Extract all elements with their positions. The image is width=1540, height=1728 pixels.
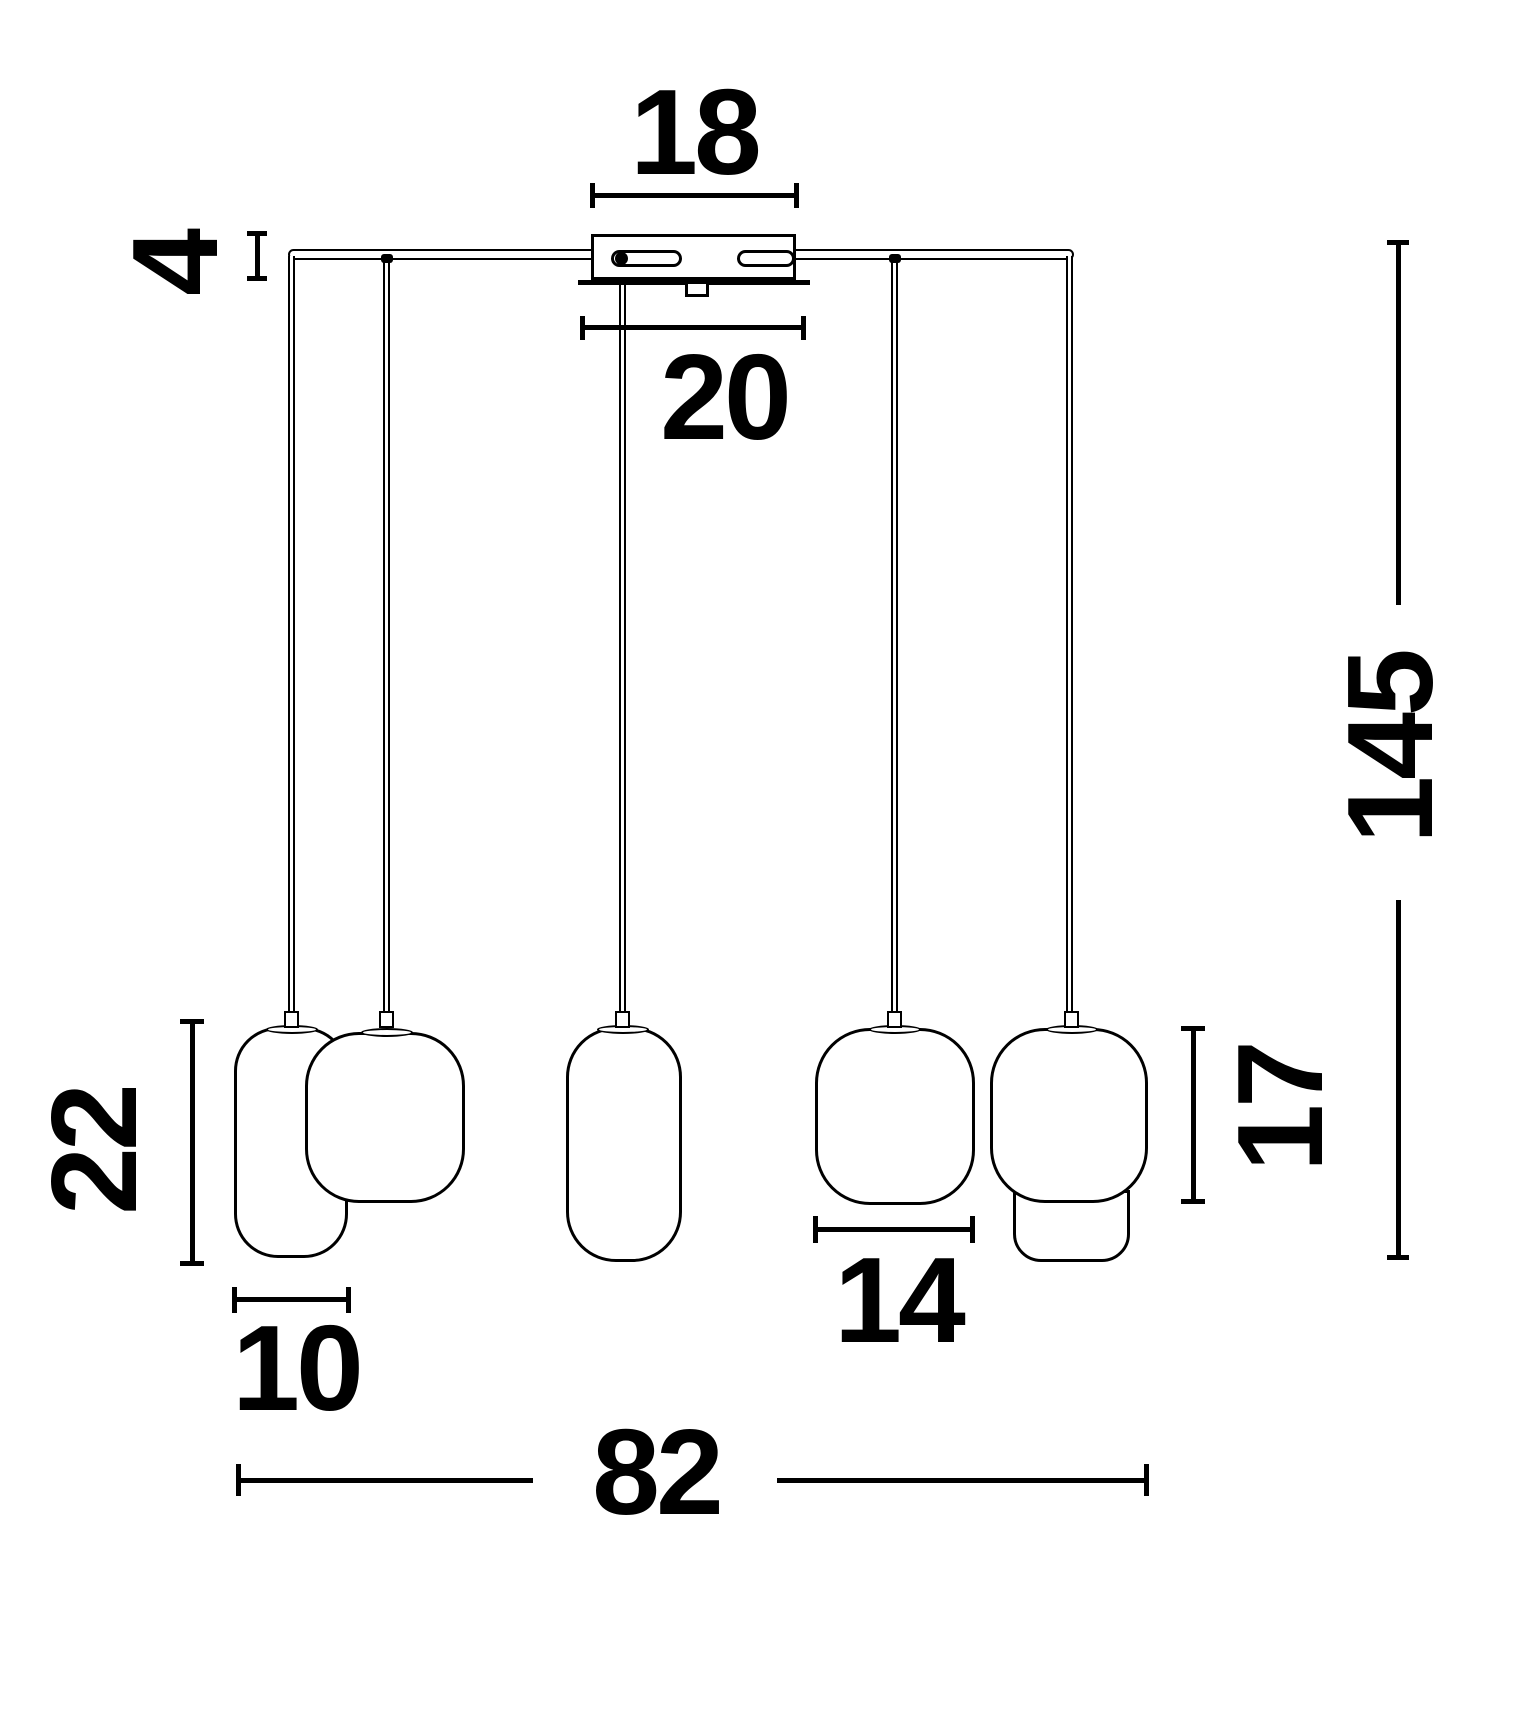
- socket-5: [1064, 1011, 1079, 1028]
- dim-tick: [1387, 1255, 1409, 1260]
- dim-tick: [1181, 1199, 1205, 1204]
- dim-tick: [1181, 1026, 1205, 1031]
- dim-line-22: [190, 1021, 195, 1266]
- dim-tick: [180, 1019, 204, 1024]
- dim-label-canopy-plate-width: 20: [660, 336, 788, 458]
- shade-5-rounded: [990, 1028, 1148, 1203]
- dim-tick: [580, 316, 585, 340]
- dim-label-right-shade-width: 14: [834, 1239, 962, 1361]
- cord-2-joint: [381, 254, 393, 263]
- dim-tick: [247, 276, 267, 281]
- socket-4: [887, 1011, 902, 1028]
- dim-label-canopy-width: 18: [630, 71, 758, 193]
- dim-line-145-upper: [1396, 242, 1401, 605]
- dim-label-suspension-height: 145: [1329, 652, 1451, 844]
- dim-line-82-right: [777, 1478, 1148, 1483]
- shade-2-rounded: [305, 1032, 465, 1203]
- dim-label-left-shade-height: 22: [33, 1087, 155, 1215]
- socket-2: [379, 1011, 394, 1028]
- dim-label-canopy-height: 4: [114, 232, 236, 296]
- dim-tick: [1387, 240, 1409, 245]
- dim-label-left-shade-width: 10: [232, 1307, 360, 1429]
- dim-tick: [180, 1261, 204, 1266]
- cord-1: [288, 256, 295, 1013]
- socket-1: [284, 1011, 299, 1028]
- collar-2: [361, 1028, 413, 1037]
- dim-label-right-shade-height: 17: [1219, 1044, 1341, 1172]
- dim-tick: [801, 316, 806, 340]
- cord-4-joint: [889, 254, 901, 263]
- dim-tick: [247, 231, 267, 236]
- dim-line-4: [255, 233, 260, 281]
- cord-5: [1066, 256, 1073, 1013]
- dim-tick: [236, 1464, 241, 1496]
- dim-tick: [590, 183, 595, 208]
- cord-2: [383, 260, 390, 1013]
- canopy-slot-right: [737, 250, 795, 267]
- dim-line-17: [1191, 1028, 1196, 1204]
- pendant-lamp-dimension-drawing: 18 20 4 145 22 10 14 17 82: [0, 0, 1540, 1728]
- cord-4: [891, 260, 898, 1013]
- canopy-notch: [685, 284, 709, 297]
- dim-tick: [813, 1216, 818, 1243]
- shade-4-rounded: [815, 1028, 975, 1205]
- shade-3-capsule: [566, 1027, 682, 1262]
- socket-3: [615, 1011, 630, 1028]
- dim-tick: [970, 1216, 975, 1243]
- dim-tick: [1144, 1464, 1149, 1496]
- dim-label-total-width: 82: [592, 1411, 720, 1533]
- dim-tick: [794, 183, 799, 208]
- cord-3: [619, 258, 626, 1013]
- dim-line-145-lower: [1396, 900, 1401, 1258]
- dim-line-82-left: [238, 1478, 533, 1483]
- cord-3-joint: [615, 252, 628, 265]
